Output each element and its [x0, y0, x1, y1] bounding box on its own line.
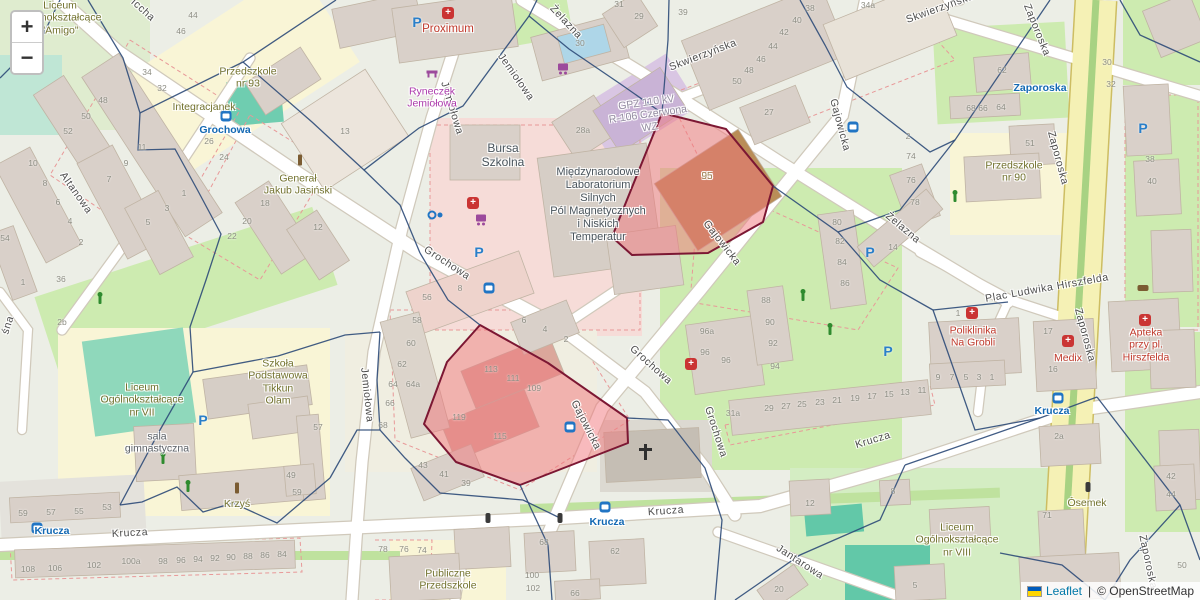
parking-icon: P	[474, 244, 483, 260]
market-bench-icon	[427, 71, 438, 74]
bus-stop-icon[interactable]	[600, 502, 611, 513]
building	[392, 0, 518, 63]
playground-icon	[187, 484, 190, 492]
building	[0, 226, 37, 301]
road	[0, 292, 28, 430]
building	[1154, 464, 1196, 511]
building	[389, 553, 461, 600]
building	[1149, 329, 1196, 389]
building	[789, 479, 831, 516]
attribution-separator: |	[1088, 584, 1091, 598]
monument-icon	[298, 155, 302, 166]
building	[1033, 318, 1097, 391]
playground-icon	[802, 293, 805, 301]
osm-link[interactable]: © OpenStreetMap	[1097, 584, 1194, 598]
building	[929, 360, 1005, 389]
parking-icon: P	[1138, 120, 1147, 136]
playground-icon	[162, 456, 165, 464]
tram-stop-icon[interactable]	[1053, 393, 1064, 404]
building	[974, 53, 1032, 93]
bicycle-icon	[428, 211, 437, 220]
ukraine-flag-icon	[1027, 586, 1042, 597]
parking-icon: P	[198, 412, 207, 428]
playground-icon	[829, 327, 832, 335]
bus-stop-icon[interactable]	[32, 523, 43, 534]
bus-stop-icon[interactable]	[848, 122, 859, 133]
building	[284, 464, 317, 497]
building	[949, 93, 1020, 119]
zoom-out-button[interactable]: −	[12, 43, 42, 73]
medical-icon: +	[966, 307, 978, 319]
medical-icon: +	[467, 197, 479, 209]
medical-icon: +	[1139, 314, 1151, 326]
building	[681, 0, 848, 110]
traffic-light-icon	[558, 513, 563, 523]
shop-cart-icon	[558, 64, 568, 71]
building	[929, 506, 991, 541]
map-canvas[interactable]: + − Leaflet | © OpenStreetMap IcchaAltan…	[0, 0, 1200, 600]
zoom-in-button[interactable]: +	[12, 12, 42, 43]
parking-icon: P	[412, 14, 421, 30]
attribution-bar: Leaflet | © OpenStreetMap	[1021, 582, 1200, 600]
building	[964, 153, 1041, 202]
bus-stop-icon[interactable]	[221, 111, 232, 122]
playground-icon	[99, 296, 102, 304]
medical-icon: +	[685, 358, 697, 370]
medical-icon: +	[442, 7, 454, 19]
shop-cart-icon	[476, 215, 486, 222]
building	[1134, 159, 1182, 216]
parking-icon: P	[883, 343, 892, 359]
zoom-control: + −	[10, 10, 44, 75]
building	[555, 579, 601, 600]
leaflet-link[interactable]: Leaflet	[1046, 584, 1082, 598]
monument-icon	[235, 483, 239, 494]
playground-icon	[954, 194, 957, 202]
parking-icon: P	[865, 244, 874, 260]
bus-stop-icon[interactable]	[484, 283, 495, 294]
building	[9, 492, 120, 523]
landuse-area	[82, 327, 196, 436]
building	[879, 479, 910, 506]
building	[1151, 229, 1193, 292]
car-icon	[1138, 285, 1149, 291]
bus-stop-icon[interactable]	[565, 422, 576, 433]
medical-icon: +	[1062, 335, 1074, 347]
building	[894, 564, 946, 600]
building	[1039, 423, 1101, 466]
traffic-light-icon	[486, 513, 491, 523]
building	[450, 125, 520, 180]
building	[454, 527, 511, 570]
traffic-light-icon	[1086, 482, 1091, 492]
church-cross-icon	[637, 444, 653, 460]
